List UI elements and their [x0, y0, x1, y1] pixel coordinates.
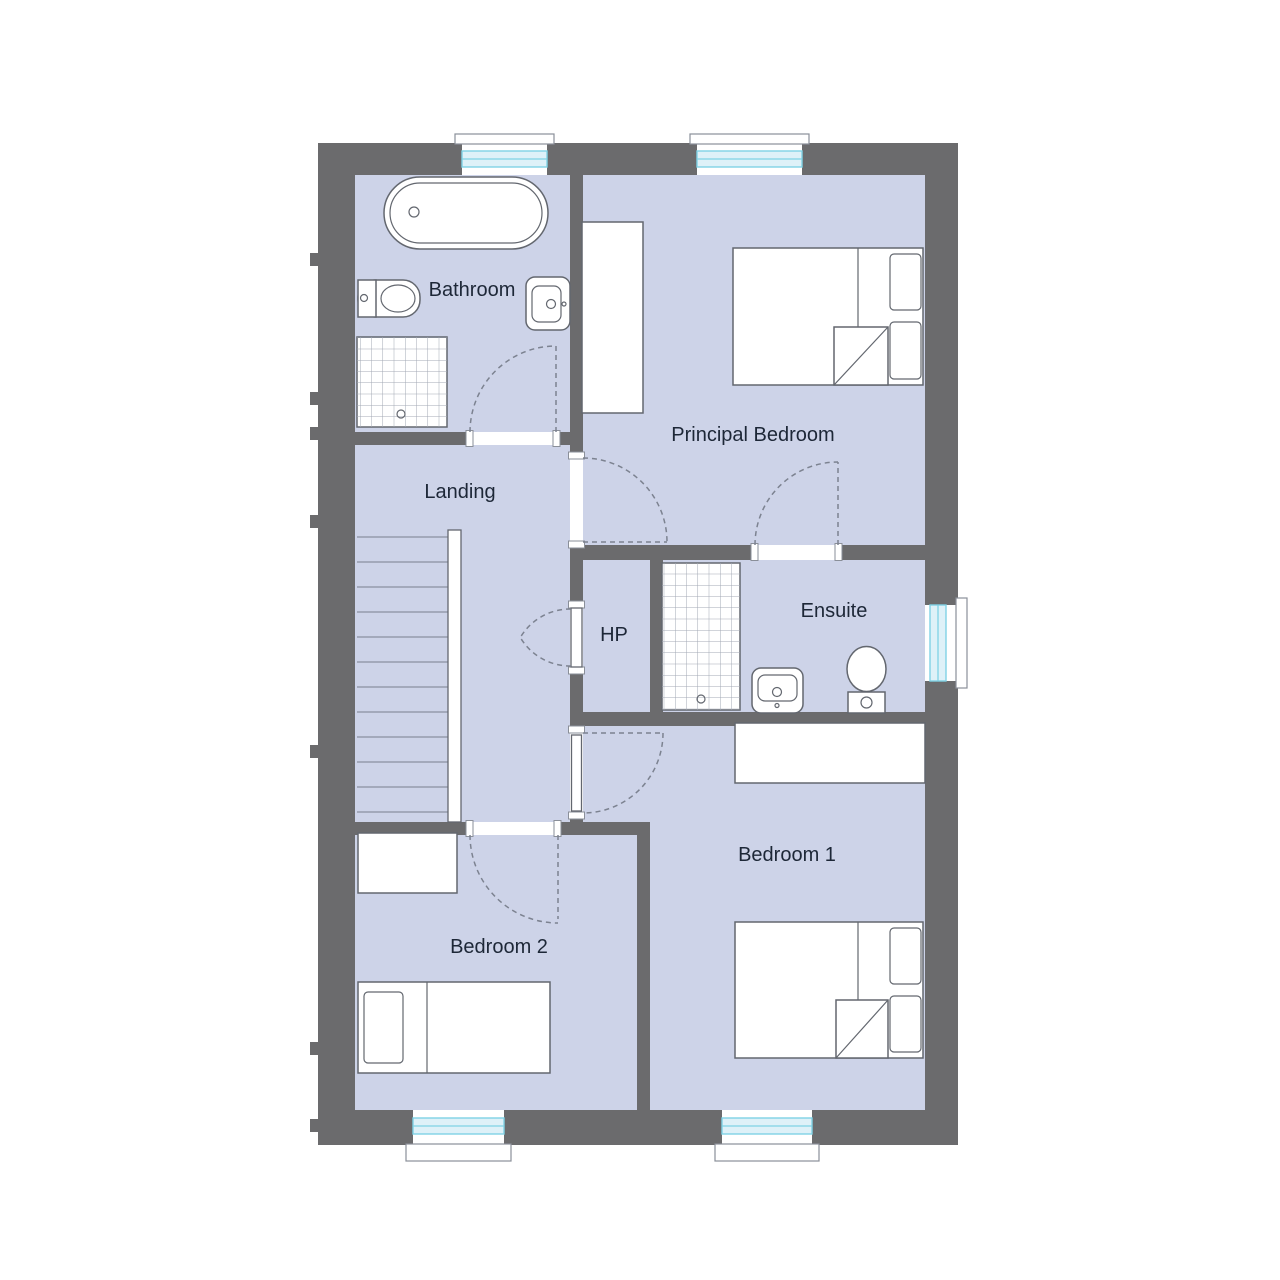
window-bathroom	[455, 134, 554, 175]
window-bedroom1	[715, 1110, 819, 1161]
label-bedroom1: Bedroom 1	[738, 844, 836, 866]
toilet-icon	[847, 647, 886, 714]
floor-plan-page: Bathroom Landing HP Principal Bedroom En…	[0, 0, 1280, 1280]
shower-icon	[357, 337, 447, 427]
stair-railing	[448, 530, 461, 822]
wardrobe-icon	[358, 833, 457, 893]
single-bed-icon	[358, 982, 550, 1073]
wall-hp-ensuite	[650, 545, 663, 726]
window-ensuite	[925, 598, 967, 688]
bathtub-icon	[384, 177, 548, 249]
double-bed-icon	[733, 248, 923, 385]
label-bedroom2: Bedroom 2	[450, 936, 548, 958]
toilet-icon	[358, 280, 420, 317]
floor-plan-svg: Bathroom Landing HP Principal Bedroom En…	[0, 0, 1280, 1280]
sink-icon	[526, 277, 570, 330]
label-ensuite: Ensuite	[801, 600, 868, 622]
wall-bedroom-ensuite	[570, 545, 925, 560]
label-hp: HP	[600, 624, 628, 646]
shower-icon	[662, 563, 740, 710]
window-principal-bedroom	[690, 134, 809, 175]
wall-bedroom2-bedroom1	[637, 822, 650, 1110]
label-bathroom: Bathroom	[429, 279, 516, 301]
double-bed-icon	[735, 922, 923, 1058]
sink-icon	[752, 668, 803, 713]
wall-joint-notches	[310, 253, 319, 1132]
wardrobe-icon	[582, 222, 643, 413]
window-bedroom2	[406, 1110, 511, 1161]
wardrobe-icon	[735, 723, 925, 783]
label-landing: Landing	[424, 481, 495, 503]
label-principal-bedroom: Principal Bedroom	[671, 424, 834, 446]
